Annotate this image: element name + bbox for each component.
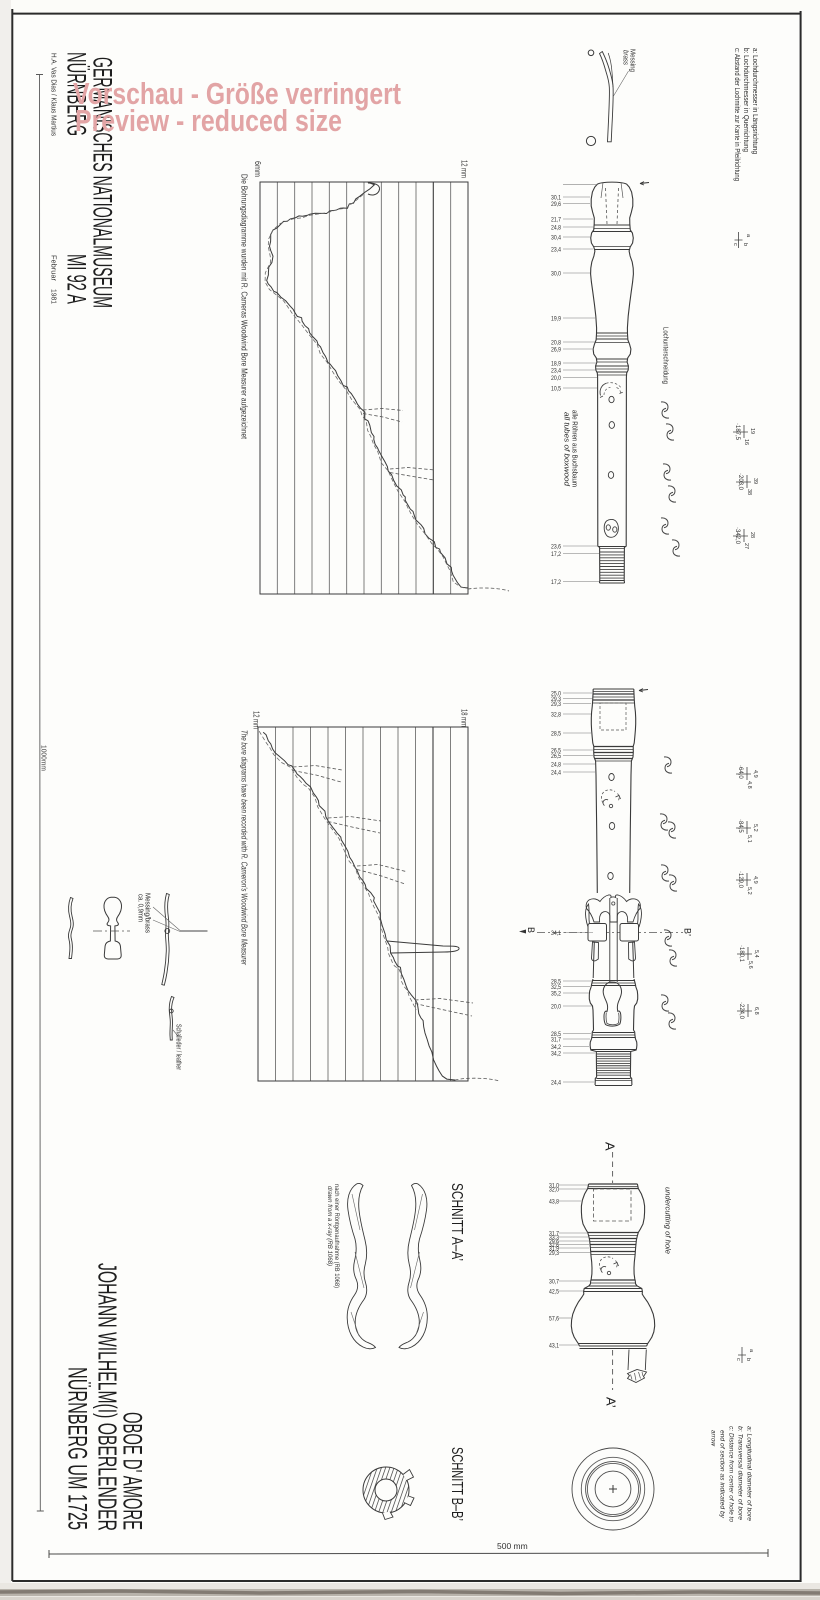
svg-text:end of section as indicated b: end of section as indicated by xyxy=(719,1430,726,1519)
svg-text:35,2: 35,2 xyxy=(551,990,561,997)
svg-text:Lochunterschneidung: Lochunterschneidung xyxy=(662,327,671,384)
svg-text:29,6: 29,6 xyxy=(551,201,561,208)
svg-text:18,9: 18,9 xyxy=(551,360,561,367)
svg-text:32,0: 32,0 xyxy=(549,1186,559,1193)
svg-text:Schalleder / leather: Schalleder / leather xyxy=(175,1024,182,1070)
svg-text:19: 19 xyxy=(749,428,755,434)
svg-text:29,3: 29,3 xyxy=(549,1250,559,1257)
svg-text:4,9: 4,9 xyxy=(752,770,758,778)
svg-text:c: c xyxy=(732,243,738,246)
svg-text:26,9: 26,9 xyxy=(551,346,561,353)
svg-text:all tubes of boxwood: all tubes of boxwood xyxy=(563,412,570,487)
svg-text:24,4: 24,4 xyxy=(551,769,561,776)
svg-text:Messing/brass: Messing/brass xyxy=(144,893,151,933)
svg-text:undercutting of hole: undercutting of hole xyxy=(664,1187,673,1254)
svg-text:1981: 1981 xyxy=(50,289,59,304)
svg-text:30,7: 30,7 xyxy=(549,1278,559,1285)
svg-text:b: b xyxy=(745,1358,751,1361)
svg-text:32,8: 32,8 xyxy=(551,711,561,718)
svg-text:16: 16 xyxy=(743,439,749,445)
svg-text:·84,5: ·84,5 xyxy=(737,819,743,833)
svg-text:6mm: 6mm xyxy=(253,161,262,177)
svg-text:500 mm: 500 mm xyxy=(497,1541,528,1551)
svg-text:5,2: 5,2 xyxy=(752,824,758,832)
svg-text:24,4: 24,4 xyxy=(551,1079,561,1086)
svg-text:12 mm: 12 mm xyxy=(460,160,469,178)
svg-text:·64,0: ·64,0 xyxy=(737,765,743,779)
svg-text:18 mm: 18 mm xyxy=(460,709,469,727)
svg-text:39: 39 xyxy=(752,478,758,484)
svg-text:c: Distance from center of ho: c: Distance from center of hole to xyxy=(728,1426,735,1522)
svg-text:23,6: 23,6 xyxy=(551,543,561,550)
svg-text:5,6: 5,6 xyxy=(747,961,753,969)
svg-text:H.A. Vas Dias / Klaus Martius: H.A. Vas Dias / Klaus Martius xyxy=(50,53,59,136)
svg-text:Messing: Messing xyxy=(629,49,636,72)
svg-text:·342,0: ·342,0 xyxy=(734,527,740,545)
svg-text:brass: brass xyxy=(622,50,629,65)
svg-text:42,5: 42,5 xyxy=(549,1288,559,1295)
svg-text:43,8: 43,8 xyxy=(549,1198,559,1205)
svg-text:31,7: 31,7 xyxy=(551,1036,561,1043)
svg-text:43,1: 43,1 xyxy=(549,1342,559,1349)
svg-text:B: B xyxy=(526,927,536,933)
svg-text:17,2: 17,2 xyxy=(551,579,561,586)
svg-text:57,6: 57,6 xyxy=(549,1315,559,1322)
svg-text:17,2: 17,2 xyxy=(551,551,561,558)
svg-text:b: Lochdurchmesser in Querric: b: Lochdurchmesser in Querrichtung xyxy=(742,48,749,152)
svg-text:Februar: Februar xyxy=(50,255,59,281)
svg-text:b: Transversal diameter of: b: Transversal diameter of bore xyxy=(737,1426,744,1520)
svg-text:ca. 0,9mm: ca. 0,9mm xyxy=(137,894,144,922)
svg-text:arrow: arrow xyxy=(710,1430,717,1447)
svg-text:20,0: 20,0 xyxy=(551,375,561,382)
svg-text:Die Bohrungsdiagramme wurden: Die Bohrungsdiagramme wurden mit R. Came… xyxy=(240,174,249,440)
svg-text:alle Röhren aus Buchsbaum: alle Röhren aus Buchsbaum xyxy=(571,410,578,487)
svg-text:A: A xyxy=(603,1142,618,1151)
svg-text:SCHNITT A–A’: SCHNITT A–A’ xyxy=(448,1183,465,1261)
svg-text:20,8: 20,8 xyxy=(551,339,561,346)
svg-text:MI 92 A: MI 92 A xyxy=(62,254,92,304)
svg-text:The bore diagrams have been r: The bore diagrams have been recorded wit… xyxy=(240,730,249,965)
svg-text:21,7: 21,7 xyxy=(551,216,561,223)
svg-text:Preview - reduced size: Preview - reduced size xyxy=(75,103,342,138)
svg-text:JOHANN WILHELM(I) OBERLENDER: JOHANN WILHELM(I) OBERLENDER xyxy=(93,1263,123,1531)
svg-text:B’: B’ xyxy=(683,928,693,936)
svg-text:23,4: 23,4 xyxy=(551,367,561,374)
svg-text:26,5: 26,5 xyxy=(551,753,561,760)
svg-text:24,8: 24,8 xyxy=(551,224,561,231)
svg-text:nach einer Röntgenaufnahme (R: nach einer Röntgenaufnahme (RB 1068) xyxy=(333,1184,340,1288)
svg-text:4,9: 4,9 xyxy=(752,876,758,884)
svg-text:·129,0: ·129,0 xyxy=(737,871,743,889)
svg-text:a: Longitudinal diameter of: a: Longitudinal diameter of bore xyxy=(746,1426,753,1521)
svg-text:1000mm: 1000mm xyxy=(40,745,49,771)
svg-text:5,4: 5,4 xyxy=(753,950,759,958)
svg-text:·224,0: ·224,0 xyxy=(738,1002,744,1020)
svg-text:·187,5: ·187,5 xyxy=(734,423,740,441)
svg-text:12 mm: 12 mm xyxy=(252,711,261,729)
svg-text:23,4: 23,4 xyxy=(551,246,561,253)
svg-text:19,9: 19,9 xyxy=(551,315,561,322)
svg-text:34,2: 34,2 xyxy=(551,1050,561,1057)
svg-text:30,0: 30,0 xyxy=(551,270,561,277)
svg-text:24,8: 24,8 xyxy=(551,761,561,768)
svg-text:b: b xyxy=(742,243,748,246)
svg-text:c: c xyxy=(735,1358,741,1361)
svg-text:6,8: 6,8 xyxy=(753,1007,759,1015)
svg-text:NÜRNBERG UM 1725: NÜRNBERG UM 1725 xyxy=(63,1367,93,1530)
svg-text:c: Abstand der Lochmitte zur: c: Abstand der Lochmitte zur Kante in Pf… xyxy=(733,48,740,181)
svg-text:5,2: 5,2 xyxy=(746,887,752,895)
svg-text:SCHNITT B–B’: SCHNITT B–B’ xyxy=(448,1447,465,1521)
svg-text:28: 28 xyxy=(749,532,755,538)
svg-text:27: 27 xyxy=(743,543,749,549)
svg-text:5,1: 5,1 xyxy=(746,835,752,843)
svg-text:28,5: 28,5 xyxy=(551,730,561,737)
svg-text:drawn from a x-ray (RB 1068): drawn from a x-ray (RB 1068) xyxy=(326,1186,333,1266)
svg-text:a: Lochdurchmesser in Längsri: a: Lochdurchmesser in Längsrichtung xyxy=(751,48,758,154)
svg-text:30,4: 30,4 xyxy=(551,234,561,241)
svg-text:·203,0: ·203,0 xyxy=(737,473,743,491)
svg-text:34,1: 34,1 xyxy=(551,930,561,937)
svg-text:A’: A’ xyxy=(604,1397,619,1408)
svg-text:4,8: 4,8 xyxy=(746,781,752,789)
svg-text:20,0: 20,0 xyxy=(551,1003,561,1010)
svg-text:38: 38 xyxy=(746,489,752,495)
svg-text:29,3: 29,3 xyxy=(551,701,561,708)
svg-text:10,5: 10,5 xyxy=(551,385,561,392)
svg-text:·180,1: ·180,1 xyxy=(738,945,744,963)
